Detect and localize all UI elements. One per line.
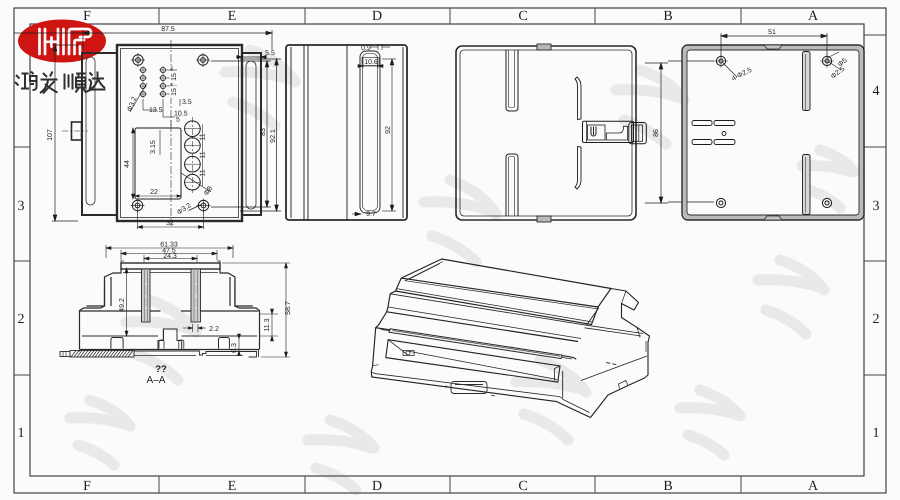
svg-text:107: 107 [47,129,54,141]
svg-text:44: 44 [124,160,131,168]
svg-text:15: 15 [171,73,178,81]
svg-text:11: 11 [200,133,207,140]
svg-text:0.9: 0.9 [361,45,371,52]
svg-text:3: 3 [873,199,880,214]
svg-text:2.2: 2.2 [209,326,219,333]
svg-text:4: 4 [873,84,880,99]
svg-text:24.3: 24.3 [163,253,177,260]
svg-text:F: F [83,479,91,494]
svg-text:32: 32 [166,220,174,227]
svg-text:3.15: 3.15 [150,140,157,154]
svg-text:9.7: 9.7 [366,211,376,218]
svg-text:51: 51 [768,29,776,36]
svg-text:11.3: 11.3 [264,318,271,331]
svg-text:58.7: 58.7 [285,301,292,315]
svg-text:??: ?? [155,364,167,375]
svg-text:6.3: 6.3 [231,343,238,353]
svg-text:86: 86 [653,129,660,137]
svg-text:87.5: 87.5 [161,26,175,33]
svg-text:3.5: 3.5 [182,99,192,106]
svg-text:A–A: A–A [147,375,166,386]
svg-text:C: C [518,479,527,494]
svg-text:11: 11 [200,169,207,176]
svg-text:C: C [518,9,527,24]
svg-text:E: E [228,479,237,494]
svg-text:15: 15 [171,88,178,96]
svg-text:83: 83 [260,128,267,136]
svg-text:92: 92 [385,126,392,134]
svg-text:F: F [83,9,91,24]
svg-text:2: 2 [873,312,880,327]
svg-text:10.6: 10.6 [364,59,378,66]
svg-text:22: 22 [150,189,158,196]
svg-text:49.2: 49.2 [119,298,126,312]
svg-text:A: A [808,479,819,494]
svg-text:5: 5 [176,117,180,124]
svg-text:A: A [808,9,819,24]
svg-text:1: 1 [873,426,880,441]
svg-text:92.1: 92.1 [270,129,277,143]
svg-text:3: 3 [18,199,25,214]
svg-text:E: E [228,9,237,24]
svg-text:2: 2 [18,312,25,327]
svg-text:D: D [372,9,382,24]
svg-text:13.5: 13.5 [149,107,163,114]
svg-text:D: D [372,479,382,494]
svg-text:B: B [663,9,672,24]
svg-text:1: 1 [18,426,25,441]
svg-text:11: 11 [200,151,207,158]
svg-text:5.5: 5.5 [265,50,275,57]
svg-text:B: B [663,479,672,494]
